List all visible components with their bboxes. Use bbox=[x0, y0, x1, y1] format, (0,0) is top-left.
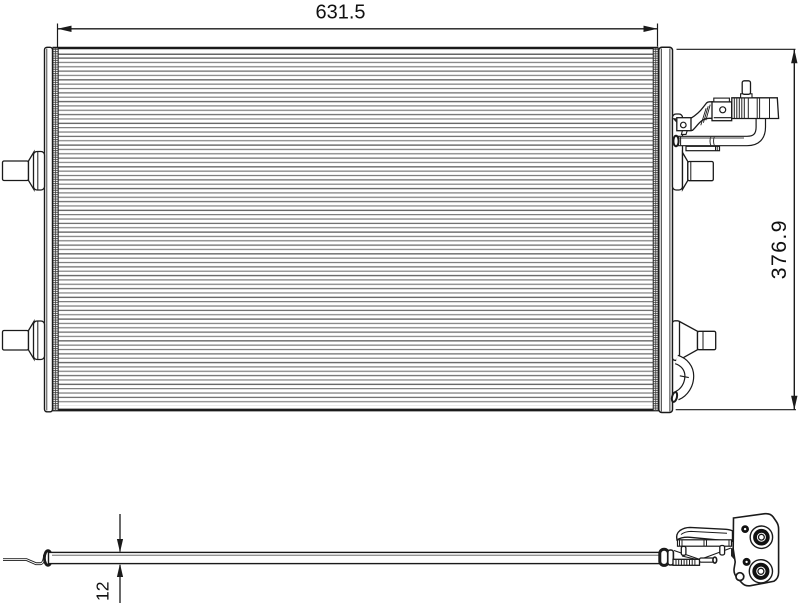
svg-text:631.5: 631.5 bbox=[315, 2, 365, 24]
svg-text:376.9: 376.9 bbox=[767, 219, 791, 279]
svg-text:12: 12 bbox=[92, 581, 112, 600]
